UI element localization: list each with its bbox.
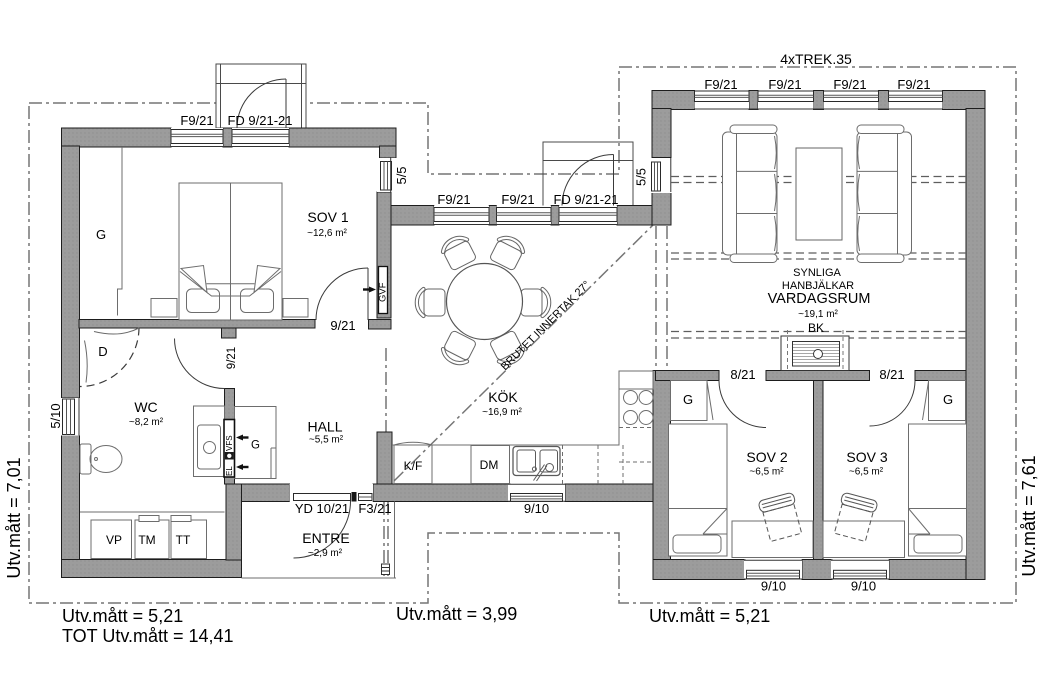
svg-text:EL: EL xyxy=(225,466,234,476)
svg-text:SOV 1: SOV 1 xyxy=(307,209,348,225)
svg-text:YD 10/21: YD 10/21 xyxy=(295,501,349,516)
svg-text:ENTRE: ENTRE xyxy=(302,530,349,546)
svg-text:Utv.mått = 7,01: Utv.mått = 7,01 xyxy=(4,457,24,578)
svg-text:8/21: 8/21 xyxy=(730,367,755,382)
svg-text:G: G xyxy=(251,440,260,452)
svg-text:Utv.mått = 5,21: Utv.mått = 5,21 xyxy=(62,606,183,626)
svg-text:4xTREK.35: 4xTREK.35 xyxy=(780,51,852,67)
svg-text:KÖK: KÖK xyxy=(488,388,518,405)
svg-text:F9/21: F9/21 xyxy=(501,192,534,207)
svg-text:HALL: HALL xyxy=(307,419,342,435)
svg-text:5/10: 5/10 xyxy=(48,403,63,428)
svg-text:~6,5 m²: ~6,5 m² xyxy=(749,467,784,478)
svg-text:TM: TM xyxy=(138,533,155,547)
svg-text:SYNLIGA: SYNLIGA xyxy=(793,267,841,279)
svg-text:TT: TT xyxy=(176,533,191,547)
svg-text:~16,9 m²: ~16,9 m² xyxy=(482,407,522,418)
svg-text:WC: WC xyxy=(134,399,157,415)
svg-text:DM: DM xyxy=(480,458,499,472)
svg-text:BK: BK xyxy=(808,321,824,335)
svg-text:G: G xyxy=(96,227,106,242)
svg-text:FD 9/21-21: FD 9/21-21 xyxy=(227,113,292,128)
svg-text:9/10: 9/10 xyxy=(851,579,876,594)
svg-text:F3/21: F3/21 xyxy=(358,501,391,516)
svg-text:9/10: 9/10 xyxy=(761,579,786,594)
svg-text:GVF: GVF xyxy=(378,282,389,302)
svg-text:Utv.mått = 3,99: Utv.mått = 3,99 xyxy=(396,604,517,624)
svg-text:9/10: 9/10 xyxy=(524,501,549,516)
svg-text:~19,1 m²: ~19,1 m² xyxy=(798,309,838,320)
svg-text:FD 9/21-21: FD 9/21-21 xyxy=(553,192,618,207)
svg-text:F9/21: F9/21 xyxy=(704,77,737,92)
svg-text:SOV 2: SOV 2 xyxy=(746,449,787,465)
svg-text:~5,5 m²: ~5,5 m² xyxy=(309,435,344,446)
svg-text:~6,5 m²: ~6,5 m² xyxy=(849,467,884,478)
svg-text:5/5: 5/5 xyxy=(634,168,649,186)
svg-text:8/21: 8/21 xyxy=(879,367,904,382)
svg-text:TOT Utv.mått = 14,41: TOT Utv.mått = 14,41 xyxy=(62,626,234,646)
svg-text:K/F: K/F xyxy=(404,459,423,473)
svg-text:Utv.mått = 7,61: Utv.mått = 7,61 xyxy=(1019,455,1039,576)
svg-text:D: D xyxy=(98,344,107,359)
svg-text:F9/21: F9/21 xyxy=(897,77,930,92)
svg-text:~8,2 m²: ~8,2 m² xyxy=(129,417,164,428)
svg-text:VP: VP xyxy=(106,533,122,547)
svg-text:9/21: 9/21 xyxy=(330,318,355,333)
svg-text:~2,9 m²: ~2,9 m² xyxy=(308,548,343,559)
svg-text:F9/21: F9/21 xyxy=(437,192,470,207)
svg-text:G: G xyxy=(943,392,953,407)
svg-text:VFS: VFS xyxy=(225,435,234,451)
svg-text:9/21: 9/21 xyxy=(226,347,238,369)
svg-text:F9/21: F9/21 xyxy=(768,77,801,92)
svg-text:F9/21: F9/21 xyxy=(833,77,866,92)
svg-text:VARDAGSRUM: VARDAGSRUM xyxy=(768,291,871,307)
svg-text:F9/21: F9/21 xyxy=(180,113,213,128)
svg-text:G: G xyxy=(683,392,693,407)
svg-text:Utv.mått = 5,21: Utv.mått = 5,21 xyxy=(649,606,770,626)
svg-text:SOV 3: SOV 3 xyxy=(846,449,887,465)
svg-text:5/5: 5/5 xyxy=(394,166,409,184)
svg-text:~12,6 m²: ~12,6 m² xyxy=(307,228,347,239)
